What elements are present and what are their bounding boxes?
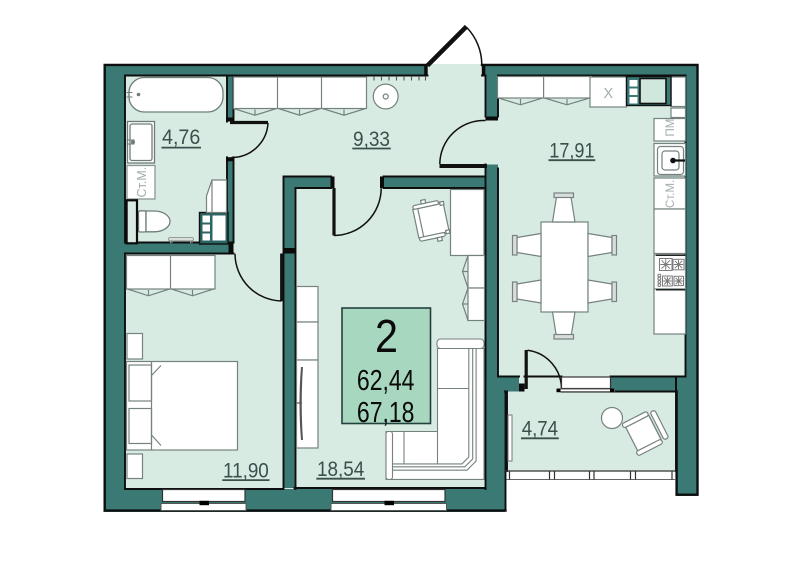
svg-text:67,18: 67,18 [357,397,415,429]
svg-text:62,44: 62,44 [357,365,415,397]
svg-text:18,54: 18,54 [317,458,365,481]
svg-text:Ст.М.: Ст.М. [135,167,149,198]
svg-text:17,91: 17,91 [549,140,594,163]
svg-text:Ст.М.: Ст.М. [665,180,677,208]
svg-text:4,74: 4,74 [522,418,559,441]
svg-text:2: 2 [375,310,398,362]
svg-text:ПМ: ПМ [665,119,677,137]
svg-text:11,90: 11,90 [223,459,269,482]
svg-text:X: X [603,86,613,102]
svg-text:4,76: 4,76 [162,126,200,149]
svg-text:9,33: 9,33 [353,128,390,151]
